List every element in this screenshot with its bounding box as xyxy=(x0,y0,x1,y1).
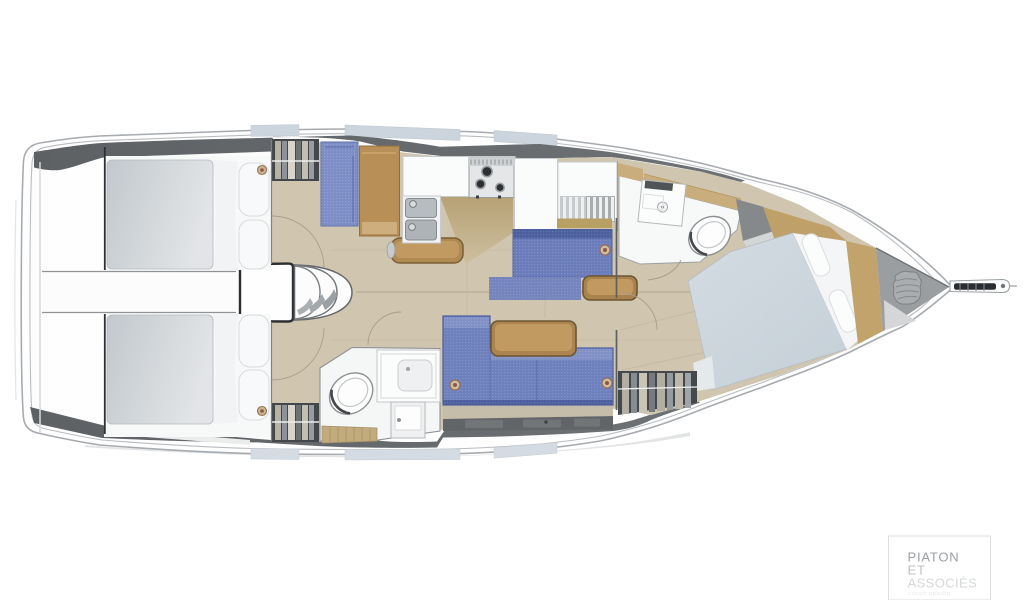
svg-text:YACHT DESIGN: YACHT DESIGN xyxy=(908,591,951,596)
svg-text:ASSOCIÉS: ASSOCIÉS xyxy=(908,576,978,591)
